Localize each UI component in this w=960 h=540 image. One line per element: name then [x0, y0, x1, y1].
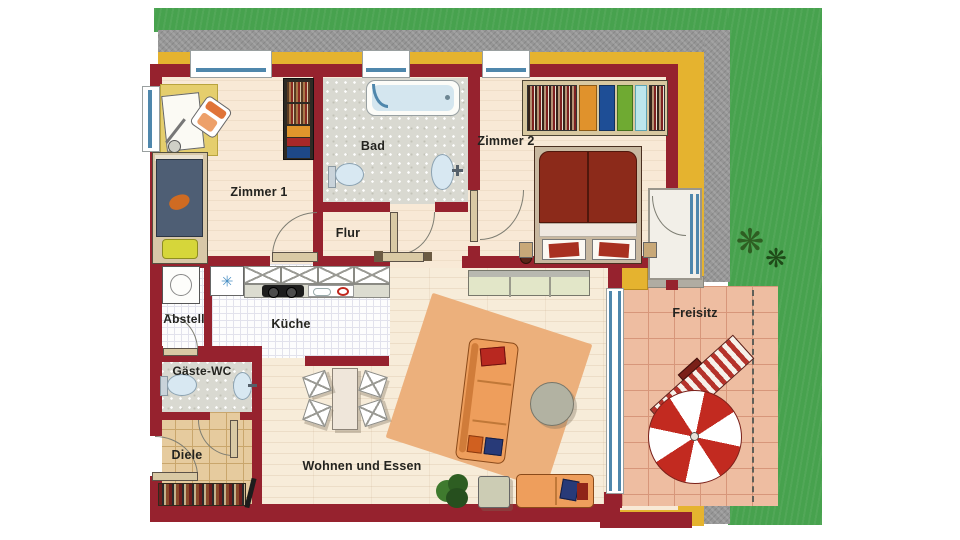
door-leaf: [470, 190, 478, 242]
wall: [305, 356, 389, 366]
toilet-bowl: [335, 163, 364, 186]
bed-pillow: [542, 239, 586, 260]
sideboard: [468, 270, 590, 296]
coat-rack: [158, 483, 246, 506]
sofa-pillow: [480, 346, 506, 366]
kitchen-cabinet: [244, 266, 281, 284]
window: [190, 50, 272, 78]
wall: [468, 246, 480, 268]
dining-table: [332, 368, 358, 430]
sofa-pillow: [484, 437, 504, 456]
window: [362, 50, 410, 78]
floor-plan: ✳: [0, 0, 960, 540]
sofa-pillow: [467, 435, 484, 454]
wall: [435, 202, 468, 212]
door-leaf: [230, 420, 238, 458]
room-label-gaeste-wc: Gäste-WC: [173, 364, 232, 378]
bed-pillow: [162, 239, 198, 259]
washing-machine: [162, 266, 200, 304]
umbrella-pole: [690, 432, 699, 441]
door-leaf: [390, 212, 398, 254]
daybed-pillow: [577, 483, 588, 500]
kettle: [337, 287, 349, 296]
daybed: [516, 474, 594, 508]
window-glass: [148, 90, 152, 148]
garden-door-frame: [696, 194, 699, 274]
coffee-table: [530, 382, 574, 426]
wall: [252, 346, 262, 420]
nightstand: [643, 242, 657, 258]
room-label-diele: Diele: [172, 448, 203, 462]
wall: [313, 64, 323, 212]
room-label-wohnen-essen: Wohnen und Essen: [303, 459, 422, 473]
bed-pillow: [592, 239, 636, 260]
wardrobe: [522, 80, 668, 136]
kitchen-cabinet: [354, 266, 390, 284]
sink: [431, 154, 454, 190]
garden-plant-icon: ❋: [736, 225, 765, 259]
stove: [262, 285, 304, 297]
room-label-flur: Flur: [336, 226, 360, 240]
garden-plant-icon: ❋: [765, 245, 787, 271]
room-label-bad: Bad: [361, 139, 385, 153]
door-leaf: [382, 252, 424, 262]
window-glass: [366, 68, 407, 72]
kitchen-cabinet: [318, 266, 354, 284]
window: [142, 86, 160, 152]
window: [482, 50, 530, 78]
wall: [323, 202, 390, 212]
wall: [600, 512, 692, 528]
sliding-door: [606, 288, 624, 494]
garden-door-frame: [690, 194, 693, 274]
kitchen-sink: [308, 285, 354, 297]
bed-zimmer1: [152, 152, 208, 264]
door-jamb: [374, 251, 383, 262]
door-leaf: [163, 348, 198, 356]
room-label-zimmer2: Zimmer 2: [477, 134, 534, 148]
sink-faucet: [456, 165, 459, 176]
wall: [468, 64, 480, 190]
wall: [252, 420, 262, 508]
room-label-abstell: Abstell: [163, 312, 204, 326]
room-label-kueche: Küche: [271, 317, 310, 331]
wall: [150, 412, 210, 420]
room-label-freisitz: Freisitz: [672, 306, 717, 320]
grass-top: [154, 8, 822, 32]
nightstand: [519, 242, 533, 258]
door-jamb: [424, 252, 432, 261]
sliding-door-frame: [618, 291, 621, 491]
shelf: [283, 78, 314, 160]
kitchen-cabinet: [281, 266, 318, 284]
wall: [604, 492, 622, 508]
sink-faucet: [248, 384, 257, 387]
window-glass: [196, 68, 266, 72]
sliding-door-frame: [609, 291, 612, 491]
wall: [150, 346, 163, 354]
door-leaf: [272, 252, 318, 262]
gravel-path-right: [704, 30, 730, 282]
freezer-icon: ✳: [221, 275, 234, 290]
side-table: [478, 476, 510, 508]
window-glass: [486, 68, 527, 72]
potted-plant: [434, 472, 472, 510]
entrance-door-leaf: [152, 472, 198, 481]
room-label-zimmer1: Zimmer 1: [230, 185, 287, 199]
terrace-boundary-dashed-line: [752, 290, 754, 502]
double-bed: [534, 146, 642, 264]
